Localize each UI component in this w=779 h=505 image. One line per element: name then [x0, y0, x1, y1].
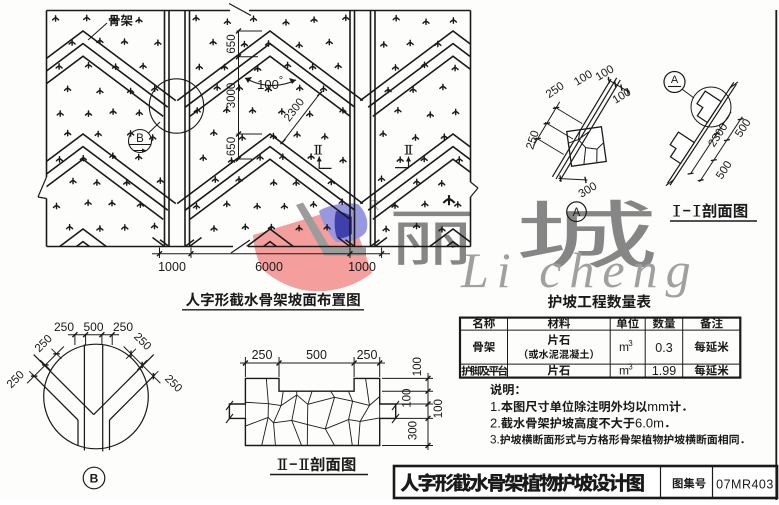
svg-text:1.99: 1.99: [652, 364, 676, 378]
svg-text:500: 500: [83, 320, 103, 334]
svg-text:250: 250: [54, 320, 74, 334]
svg-text:3: 3: [628, 363, 633, 372]
svg-text:250: 250: [357, 348, 378, 362]
svg-text:A: A: [573, 207, 581, 219]
svg-text:100: 100: [433, 399, 445, 418]
svg-text:3000: 3000: [226, 83, 238, 109]
svg-text:6000: 6000: [255, 260, 283, 274]
svg-text:300: 300: [408, 421, 420, 440]
svg-text:100: 100: [402, 389, 414, 408]
svg-text:650: 650: [226, 34, 238, 53]
svg-text:100: 100: [412, 357, 424, 376]
svg-text:°: °: [279, 75, 283, 87]
svg-text:650: 650: [226, 137, 238, 156]
svg-text:1000: 1000: [348, 260, 376, 274]
svg-text:500: 500: [306, 348, 327, 362]
svg-text:B: B: [90, 472, 99, 486]
svg-text:A: A: [671, 74, 679, 86]
svg-text:1.: 1.: [490, 399, 501, 414]
svg-text:Li cheng: Li cheng: [460, 242, 699, 298]
svg-text:6.0m: 6.0m: [635, 416, 664, 431]
svg-text:0.3: 0.3: [655, 341, 672, 355]
svg-text:07MR403: 07MR403: [716, 478, 774, 492]
svg-text:250: 250: [252, 348, 273, 362]
svg-text:3: 3: [628, 339, 633, 348]
svg-text:100: 100: [257, 77, 279, 92]
svg-text:B: B: [136, 133, 144, 145]
svg-text:2.: 2.: [490, 416, 501, 431]
svg-text:3.: 3.: [490, 434, 500, 447]
svg-text:mm: mm: [647, 399, 669, 414]
svg-text:250: 250: [113, 320, 133, 334]
svg-text:1000: 1000: [158, 260, 186, 274]
